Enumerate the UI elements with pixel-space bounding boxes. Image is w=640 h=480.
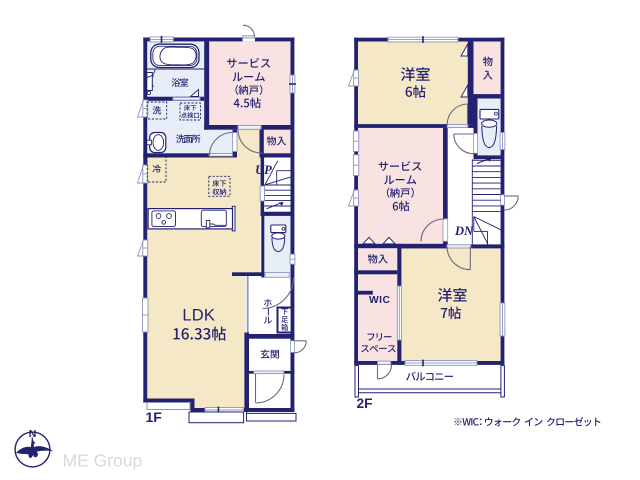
svg-text:WIC: WIC xyxy=(369,295,391,306)
svg-text:2F: 2F xyxy=(357,396,373,411)
svg-text:UP: UP xyxy=(255,163,272,177)
svg-text:LDK: LDK xyxy=(182,307,215,325)
svg-text:ME Group: ME Group xyxy=(63,451,143,471)
svg-text:1F: 1F xyxy=(146,409,163,425)
svg-text:DN: DN xyxy=(454,224,474,238)
